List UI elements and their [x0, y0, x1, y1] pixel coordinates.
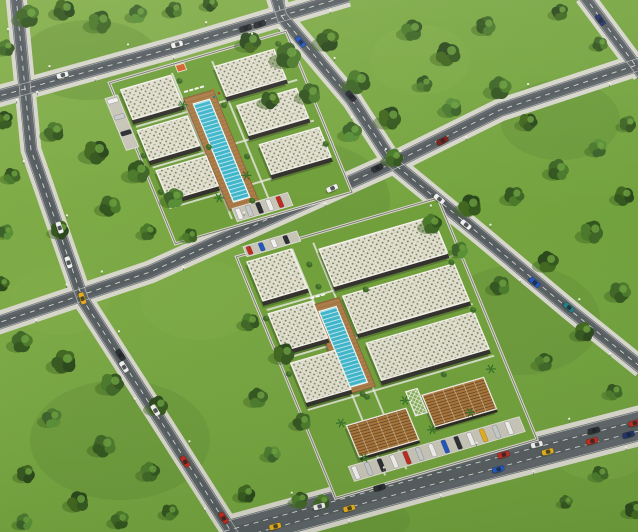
tree-canopy-blob — [23, 474, 32, 483]
tree-canopy-highlight — [269, 94, 276, 101]
tree-canopy-blob — [67, 497, 78, 508]
tree-canopy-highlight — [257, 392, 264, 399]
tree-canopy-highlight — [245, 488, 252, 495]
tree-canopy-blob — [593, 149, 601, 157]
aerial-render-viewport — [0, 0, 638, 532]
street-lamp — [568, 418, 570, 420]
tree-canopy-highlight — [63, 3, 71, 11]
street-lamp — [291, 492, 293, 494]
tree-canopy-highlight — [485, 20, 492, 27]
tree-canopy-blob — [561, 502, 568, 509]
street-lamp — [243, 212, 245, 214]
tree-canopy-blob — [93, 444, 103, 454]
tree-canopy-highlight — [583, 326, 590, 333]
tree-canopy-highlight — [173, 192, 180, 199]
tree-canopy-blob — [165, 6, 173, 14]
street-lamp — [430, 204, 432, 206]
street-lamp — [519, 279, 521, 281]
tree-canopy-highlight — [599, 469, 605, 475]
tree-canopy-highlight — [327, 33, 335, 41]
tree-canopy-blob — [393, 158, 401, 166]
tree-canopy-highlight — [5, 43, 11, 49]
tree-canopy-blob — [99, 204, 109, 214]
street-lamp — [188, 440, 190, 442]
tree-canopy-blob — [274, 346, 284, 356]
tree-canopy-blob — [292, 418, 301, 427]
tree-canopy-blob — [583, 332, 592, 341]
tree-canopy-blob — [131, 14, 140, 23]
tree-canopy-blob — [606, 390, 613, 397]
street-lamp — [35, 319, 37, 321]
tree-canopy-highlight — [357, 74, 366, 83]
street-lamp — [489, 224, 491, 226]
tree-canopy-blob — [5, 48, 12, 55]
tree-canopy-blob — [490, 282, 500, 292]
tree-canopy-highlight — [137, 8, 144, 15]
tree-canopy-highlight — [627, 119, 633, 125]
street-lamp — [16, 99, 18, 101]
tree-canopy-blob — [295, 501, 302, 508]
street-lamp — [7, 28, 9, 30]
street-lamp — [204, 508, 206, 510]
tree-canopy-highlight — [513, 190, 520, 197]
tree-canopy-highlight — [591, 225, 599, 233]
street-lamp — [48, 65, 50, 67]
tree-canopy-highlight — [99, 15, 107, 23]
tree-canopy-highlight — [559, 7, 565, 13]
street-lamp — [609, 83, 611, 85]
tree-canopy-blob — [299, 89, 310, 100]
tree-canopy-highlight — [149, 466, 156, 473]
street-lamp — [182, 266, 184, 268]
tree-canopy-blob — [168, 199, 177, 208]
tree-canopy-highlight — [623, 190, 630, 197]
tree-canopy-blob — [182, 233, 190, 241]
tree-canopy-blob — [379, 110, 389, 120]
street-lamp — [348, 519, 350, 521]
tree-canopy-highlight — [565, 498, 570, 503]
street-lamp — [532, 470, 534, 472]
tree-canopy-highlight — [5, 227, 11, 233]
tree-canopy-blob — [250, 398, 260, 408]
tree-canopy-highlight — [619, 285, 627, 293]
street-lamp — [101, 270, 103, 272]
tree-canopy-highlight — [287, 48, 297, 58]
tree-canopy-blob — [555, 13, 562, 20]
tree-canopy-highlight — [169, 507, 175, 513]
street-lamp — [324, 203, 326, 205]
street-lamp — [205, 21, 207, 23]
tree-canopy-highlight — [459, 245, 465, 251]
tree-canopy-highlight — [301, 416, 308, 423]
street-lamp — [329, 9, 331, 11]
tree-canopy-highlight — [111, 377, 119, 385]
tree-canopy-blob — [483, 26, 493, 36]
tree-canopy-blob — [321, 42, 331, 52]
tree-canopy-blob — [346, 80, 357, 91]
tree-canopy-blob — [458, 201, 469, 212]
street-lamp — [609, 352, 611, 354]
tree-canopy-highlight — [411, 23, 419, 31]
tree-canopy-blob — [625, 503, 633, 511]
tree-canopy-highlight — [103, 439, 111, 447]
tree-canopy-highlight — [597, 142, 604, 149]
tree-canopy-highlight — [95, 144, 104, 153]
tree-canopy-highlight — [299, 495, 305, 501]
tree-canopy-highlight — [309, 87, 317, 95]
tree-canopy-highlight — [23, 517, 29, 523]
tree-canopy-blob — [241, 320, 249, 328]
tree-canopy-highlight — [27, 9, 35, 17]
street-lamp — [351, 116, 353, 118]
tree-canopy-blob — [21, 18, 31, 28]
street-lamp — [625, 446, 627, 448]
street-lamp — [278, 27, 280, 29]
tree-canopy-highlight — [351, 126, 358, 133]
tree-canopy-highlight — [451, 102, 458, 109]
tree-canopy-highlight — [389, 111, 397, 119]
street-lamp — [118, 330, 120, 332]
tree-canopy-highlight — [77, 495, 85, 503]
tree-canopy-highlight — [393, 152, 400, 159]
tree-canopy-highlight — [53, 126, 60, 133]
tree-canopy-highlight — [499, 280, 506, 287]
street-lamp — [527, 83, 529, 85]
tree-canopy-blob — [424, 224, 434, 234]
tree-canopy-blob — [614, 194, 623, 203]
tree-canopy-highlight — [3, 114, 10, 121]
tree-canopy-blob — [14, 342, 25, 353]
tree-canopy-highlight — [469, 199, 477, 207]
tree-canopy-highlight — [423, 79, 429, 85]
tree-canopy-highlight — [543, 356, 550, 363]
tree-canopy-blob — [245, 494, 253, 502]
tree-canopy-highlight — [119, 514, 126, 521]
tree-canopy-highlight — [283, 347, 291, 355]
tree-canopy-highlight — [249, 316, 256, 323]
tree-canopy-blob — [137, 173, 147, 183]
tree-canopy-highlight — [11, 171, 17, 177]
tree-canopy-highlight — [109, 199, 117, 207]
tree-canopy-highlight — [189, 231, 195, 237]
street-lamp — [333, 57, 335, 59]
tree-canopy-blob — [46, 419, 55, 428]
tree-canopy-highlight — [63, 354, 72, 363]
tree-canopy-blob — [491, 88, 502, 99]
tree-canopy-blob — [281, 354, 292, 365]
tree-canopy-highlight — [499, 81, 507, 89]
tree-canopy-blob — [115, 521, 123, 529]
tree-canopy-highlight — [147, 227, 153, 233]
tree-canopy-highlight — [173, 5, 179, 11]
tree-canopy-blob — [620, 118, 627, 125]
street-lamp — [94, 77, 96, 79]
tree-canopy-blob — [539, 363, 547, 371]
tree-canopy-highlight — [1, 279, 7, 285]
tree-canopy-blob — [581, 224, 591, 234]
tree-canopy-blob — [457, 250, 465, 258]
street-lamp — [127, 43, 129, 45]
tree-canopy-highlight — [547, 255, 555, 263]
street-lamp — [578, 298, 580, 300]
tree-canopy-blob — [557, 170, 567, 180]
tree-canopy-blob — [423, 84, 430, 91]
tree-canopy-blob — [592, 42, 599, 49]
tree-canopy-highlight — [557, 163, 565, 171]
street-lamp — [23, 160, 25, 162]
street-lamp — [400, 150, 402, 152]
tree-canopy-blob — [4, 232, 12, 240]
street-lamp — [476, 442, 478, 444]
tree-canopy-blob — [287, 57, 299, 69]
tree-canopy-blob — [387, 118, 398, 129]
street-lamp — [66, 214, 68, 216]
tree-canopy-highlight — [431, 218, 438, 225]
tree-canopy-blob — [442, 104, 452, 114]
street-lamp — [440, 494, 442, 496]
street-lamp — [251, 32, 253, 34]
street-lamp — [66, 283, 68, 285]
tree-canopy-highlight — [321, 497, 327, 503]
tree-canopy-blob — [97, 22, 108, 33]
tree-canopy-blob — [51, 357, 63, 369]
tree-canopy-blob — [452, 244, 459, 251]
tree-canopy-blob — [625, 124, 633, 132]
tree-canopy-highlight — [157, 400, 164, 407]
tree-canopy-highlight — [599, 39, 605, 45]
tree-canopy-blob — [53, 8, 63, 18]
tree-canopy-highlight — [137, 165, 145, 173]
tree-canopy-highlight — [447, 46, 456, 55]
tree-canopy-blob — [44, 128, 54, 138]
street-lamp — [465, 136, 467, 138]
tree-canopy-highlight — [613, 387, 619, 393]
street-lamp — [173, 56, 175, 58]
street-lamp — [134, 398, 136, 400]
street-lamp — [383, 466, 385, 468]
tree-canopy-blob — [344, 132, 354, 142]
tree-canopy-blob — [4, 174, 11, 181]
tree-canopy-highlight — [21, 335, 29, 343]
tree-canopy-blob — [142, 472, 152, 482]
tree-canopy-highlight — [527, 116, 534, 123]
tree-canopy-blob — [89, 14, 99, 24]
tree-canopy-blob — [540, 262, 551, 273]
street-lamp — [385, 148, 387, 150]
tree-canopy-highlight — [25, 468, 32, 475]
tree-canopy-blob — [589, 232, 600, 243]
tree-canopy-highlight — [51, 412, 58, 419]
tree-canopy-highlight — [249, 35, 257, 43]
tree-canopy-blob — [406, 32, 416, 42]
site-plan-render — [0, 0, 638, 532]
tree-canopy-highlight — [271, 449, 277, 455]
scene-root — [0, 0, 638, 532]
tree-canopy-blob — [592, 472, 599, 479]
tree-canopy-blob — [23, 522, 30, 529]
tree-canopy-blob — [436, 52, 447, 63]
tree-canopy-blob — [17, 467, 25, 475]
tree-canopy-blob — [141, 232, 149, 240]
tree-canopy-blob — [476, 19, 485, 28]
street-lamp — [36, 91, 38, 93]
